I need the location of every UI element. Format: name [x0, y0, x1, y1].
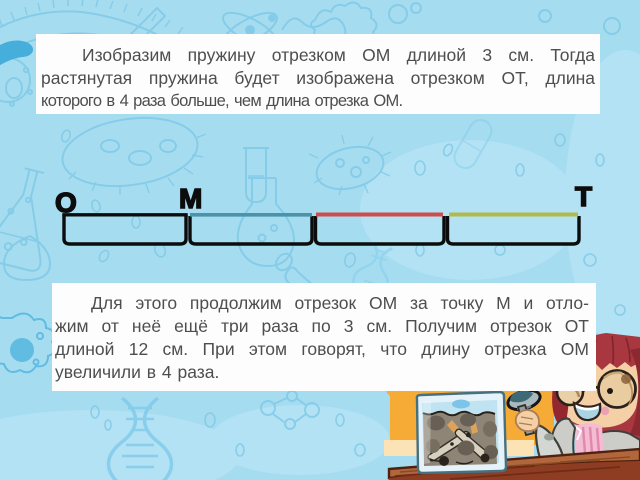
svg-text:Т: Т [575, 181, 592, 212]
svg-text:М: М [179, 183, 202, 214]
